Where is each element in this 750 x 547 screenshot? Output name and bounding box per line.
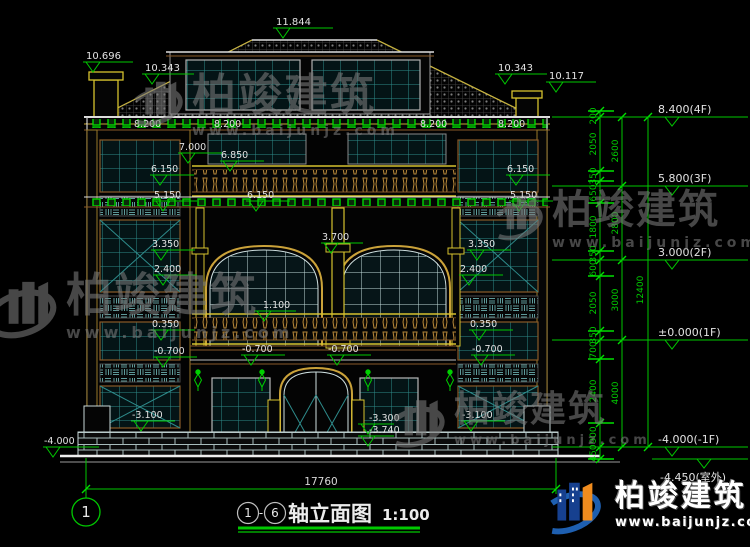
elevation-mark-label: 6.150 <box>247 190 274 201</box>
elevation-mark-label: -0.700 <box>472 344 503 355</box>
4f-window-right <box>348 134 446 164</box>
elevation-marker <box>495 74 547 84</box>
eave-mark-label: 8.200 <box>498 119 525 130</box>
pilaster-left <box>87 130 97 432</box>
dimension-value-label: 900 <box>589 426 599 443</box>
dimension-value-label: 650 <box>589 184 599 201</box>
dimension-value-label: 2400 <box>589 379 599 402</box>
chimney-right-cap <box>512 91 542 98</box>
elevation-mark-label: 10.343 <box>145 63 180 74</box>
floor-level-label: ±0.000(1F) <box>658 326 721 339</box>
elevation-mark-label: 6.150 <box>507 164 534 175</box>
drawing-scale: 1:100 <box>382 506 430 524</box>
floor-level-label: -4.000(-1F) <box>658 433 719 446</box>
elevation-mark-label: -0.700 <box>242 344 273 355</box>
pilaster-capital <box>448 248 464 254</box>
elevation-mark-label: 0.350 <box>152 319 179 330</box>
attic-window-right <box>312 60 420 110</box>
stone-base <box>78 432 558 456</box>
corner-pedestal-right <box>524 406 550 432</box>
axis-bubble-label: 1 <box>81 503 91 521</box>
dimension-value-label: 3000 <box>611 288 621 311</box>
dimension-value-label: 2050 <box>589 291 599 314</box>
dimension-value-label: 2050 <box>589 132 599 155</box>
elevation-drawing: 17760 2002050350650180035060020503507002… <box>0 0 750 547</box>
floor-level-label: 5.800(3F) <box>658 172 711 185</box>
floor-level-marker <box>652 459 748 468</box>
door-pedestal-right <box>352 400 364 432</box>
chimney-left <box>94 80 118 120</box>
elevation-mark-label: 10.343 <box>498 63 533 74</box>
dimension-value-label: 4000 <box>611 381 621 404</box>
elevation-mark-label: 3.350 <box>152 239 179 250</box>
floor-level-marker <box>552 340 748 349</box>
spandrel-panel <box>100 296 180 318</box>
elevation-marker <box>546 82 596 92</box>
dimension-value-label: 700 <box>589 341 599 358</box>
title-group: 1 - 6 轴立面图 1:100 <box>238 502 430 532</box>
elevation-mark-label: 11.844 <box>276 17 311 28</box>
overall-width-label: 17760 <box>304 476 337 488</box>
axis-bubble-group: 1 <box>72 494 100 526</box>
elevation-mark-label: 5.150 <box>510 190 537 201</box>
dimension-value-label: 1800 <box>589 215 599 238</box>
elevation-mark-label: 0.350 <box>470 319 497 330</box>
elevation-mark-label: -4.000 <box>44 436 75 447</box>
elevation-marker <box>273 28 333 38</box>
elevation-mark-label: 2.400 <box>154 264 181 275</box>
elevation-mark-label: -3.740 <box>369 425 400 436</box>
elevation-mark-label: 3.350 <box>468 239 495 250</box>
title-separator: - <box>259 506 263 520</box>
floor-level-label: 3.000(2F) <box>658 246 711 259</box>
elevation-mark-label: 5.150 <box>154 190 181 201</box>
elevation-mark-label: -3.100 <box>462 410 493 421</box>
elevation-mark-label: 2.400 <box>460 264 487 275</box>
dimension-value-label: 200 <box>589 107 599 124</box>
elevation-mark-label: 3.700 <box>322 232 349 243</box>
eave-mark-label: 8.200 <box>134 119 161 130</box>
elevation-mark-label: -3.100 <box>132 410 163 421</box>
spandrel-panel <box>458 296 538 318</box>
dimension-value-label: 2600 <box>611 139 621 162</box>
eave-mark-label: 8.200 <box>214 119 241 130</box>
eave-mark-label: 8.200 <box>420 119 447 130</box>
door-pedestal-left <box>268 400 280 432</box>
spandrel-panel <box>458 364 538 382</box>
elevation-mark-label: -0.700 <box>328 344 359 355</box>
pilaster-capital <box>192 248 208 254</box>
elevation-mark-label: -0.700 <box>154 346 185 357</box>
elevation-mark-label: 6.850 <box>221 150 248 161</box>
elevation-mark-label: 7.000 <box>179 142 206 153</box>
chimney-left-cap <box>89 72 123 80</box>
elevation-mark-label: -3.300 <box>369 413 400 424</box>
floor-level-marker <box>552 186 748 195</box>
corner-pedestal-left <box>84 406 110 432</box>
elevation-mark-label: 10.696 <box>86 51 121 62</box>
attic-window-left <box>186 60 300 110</box>
elevation-mark-label: 1.100 <box>263 300 290 311</box>
title-axis-end: 6 <box>271 506 279 520</box>
roof-group <box>86 40 548 124</box>
title-axis-start: 1 <box>244 506 252 520</box>
floor-level-label: -4.450(室外) <box>660 470 726 484</box>
cad-canvas: 17760 2002050350650180035060020503507002… <box>0 0 750 547</box>
spandrel-panel <box>100 364 180 382</box>
elevation-mark-label: 10.117 <box>549 71 584 82</box>
balustrade <box>194 318 456 340</box>
balustrade <box>194 170 456 192</box>
floor-level-marker <box>552 447 748 456</box>
floor-level-label: 8.400(4F) <box>658 103 711 116</box>
elevation-marker <box>83 62 133 72</box>
balcony-3f <box>192 166 456 196</box>
dimension-value-label: 12400 <box>636 275 646 304</box>
floor-level-marker <box>552 117 748 126</box>
drawing-title: 轴立面图 <box>288 502 372 526</box>
dimension-value-label: 350 <box>589 167 599 184</box>
elevation-mark-label: 6.150 <box>151 164 178 175</box>
dimension-value-label: 350 <box>589 326 599 343</box>
dimension-value-label: 2800 <box>611 211 621 234</box>
floor-level-marker <box>552 260 748 269</box>
